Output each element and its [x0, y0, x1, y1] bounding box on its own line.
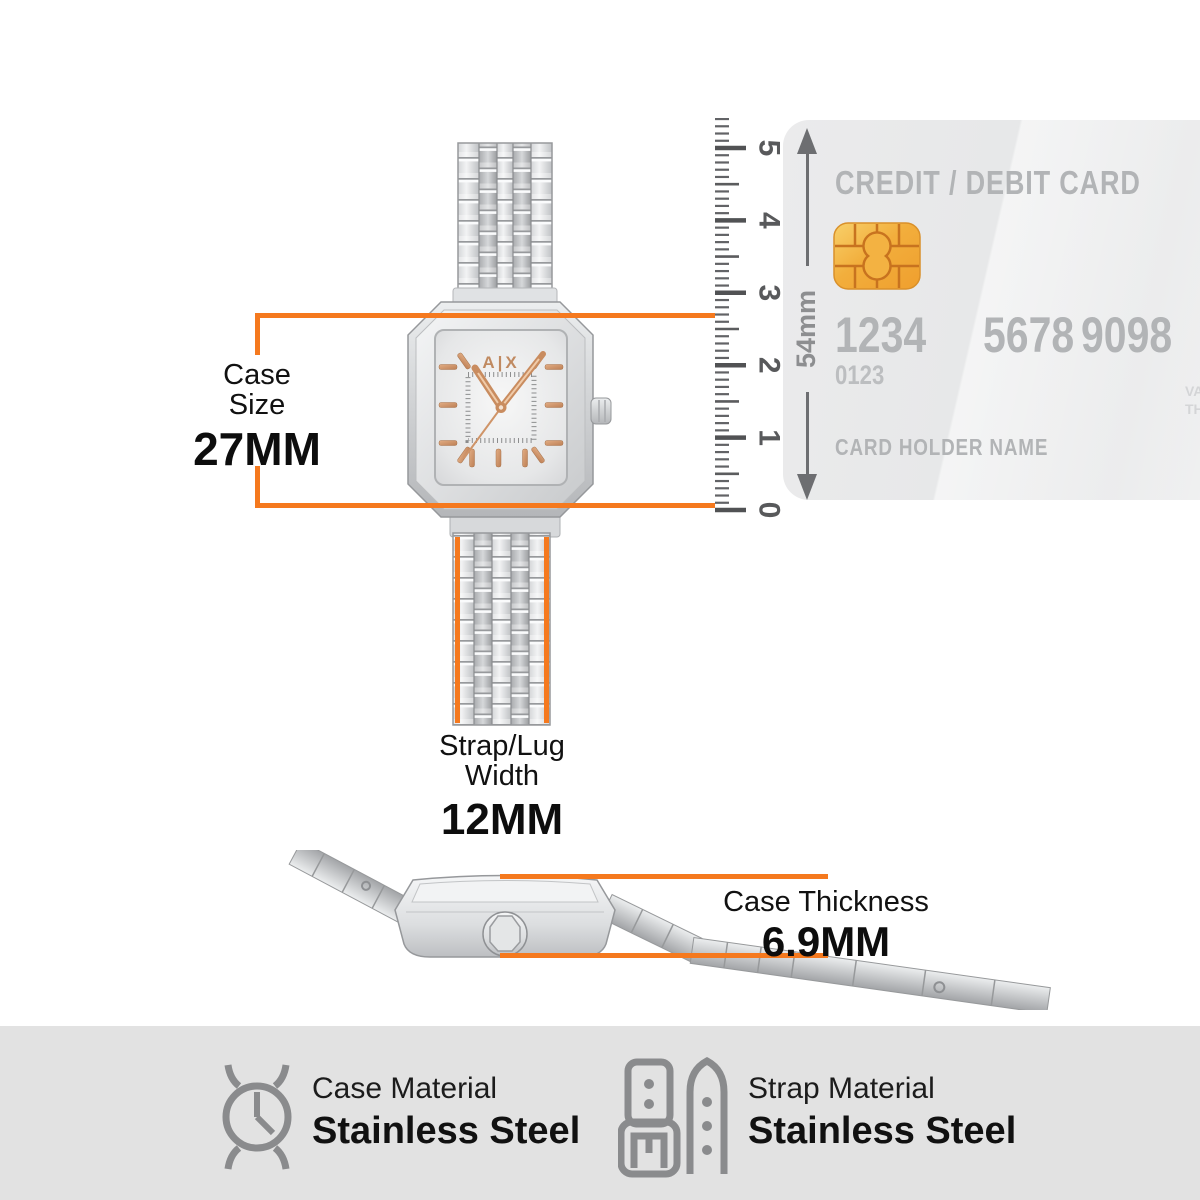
case-thickness-label: Case Thickness 6.9MM [676, 887, 976, 965]
case-material-label: Case Material [312, 1074, 580, 1104]
watch-front-view: A|X [380, 115, 630, 730]
case-thickness-value: 6.9MM [676, 920, 976, 964]
card-holder-label: CARD HOLDER NAME [835, 434, 1095, 461]
case-material-block: Case Material Stainless Steel [312, 1074, 580, 1150]
watch-dimensions-infographic: A|X [0, 0, 1200, 1200]
strap-material-block: Strap Material Stainless Steel [748, 1074, 1016, 1150]
strap-width-value: 12MM [402, 797, 602, 843]
side-crown [483, 912, 527, 956]
strap-icon [618, 1056, 738, 1181]
strap-width-line-right [544, 537, 549, 723]
ruler-number: 2 [753, 357, 786, 374]
case-size-label: Case Size 27MM [157, 360, 357, 473]
card-title: CREDIT / DEBIT CARD [835, 164, 1200, 202]
card-height-label: 54mm [791, 269, 823, 389]
card-chip-icon [833, 222, 921, 290]
materials-bar: Case Material Stainless Steel Strap Mate… [0, 1026, 1200, 1200]
ruler-number: 0 [753, 502, 786, 519]
card-number-group-2: 5678 [983, 306, 1094, 364]
card-height-arrow-down [797, 474, 817, 500]
ruler: 012345 [711, 118, 791, 520]
case-thickness-line-top [500, 874, 828, 879]
crown [591, 398, 611, 424]
bracelet-bottom [453, 533, 550, 725]
brand-logo: A|X [482, 353, 519, 372]
credit-card: CREDIT / DEBIT CARD 1234 5678 9098 01 [783, 120, 1200, 500]
ruler-number: 5 [753, 140, 786, 157]
case-size-value: 27MM [157, 425, 357, 473]
strap-width-label: Strap/Lug Width 12MM [402, 731, 602, 843]
ruler-number: 1 [753, 429, 786, 446]
card-sub-number: 0123 [835, 360, 895, 391]
case-size-line-top [255, 313, 715, 318]
bracelet-top [458, 143, 552, 303]
card-number-group-3: 9098 [1081, 306, 1192, 364]
card-height-arrow-line-top [806, 154, 809, 266]
case-size-line-bottom [255, 503, 715, 508]
watch-case-icon [212, 1062, 302, 1172]
side-case [395, 876, 615, 958]
strap-material-label: Strap Material [748, 1074, 1016, 1104]
card-number-group-1: 1234 [835, 306, 946, 364]
case-size-bracket-top [255, 313, 260, 355]
card-valid-thru: VALIDTHRU [1185, 382, 1200, 418]
strap-width-line-left [455, 537, 460, 723]
card-height-arrow-line-bottom [806, 392, 809, 474]
ruler-number: 3 [753, 284, 786, 301]
strap-material-value: Stainless Steel [748, 1112, 1016, 1150]
card-height-arrow-up [797, 128, 817, 154]
case-material-value: Stainless Steel [312, 1112, 580, 1150]
watch-case: A|X [408, 302, 611, 517]
ruler-number: 4 [753, 212, 786, 229]
